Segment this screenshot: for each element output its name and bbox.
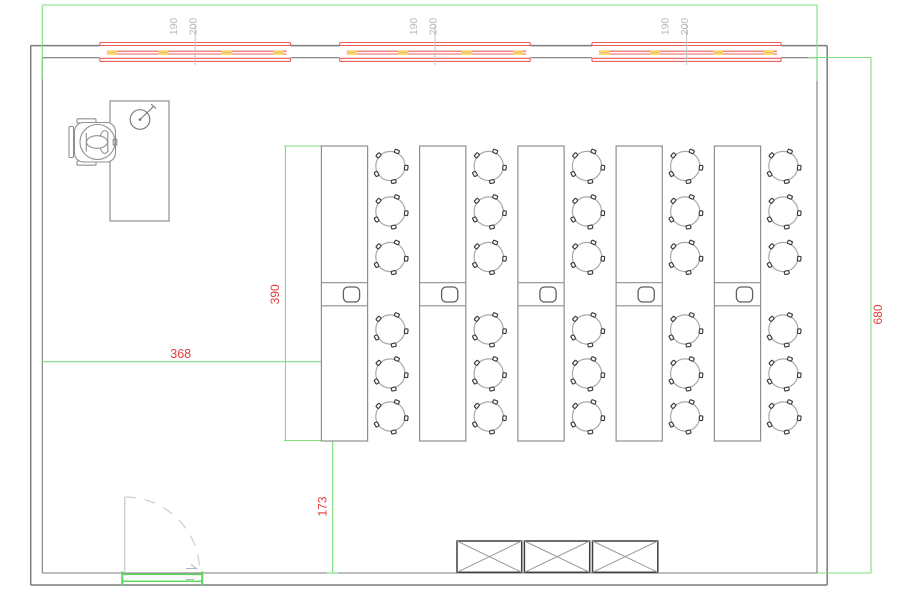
- svg-text:173: 173: [316, 496, 330, 516]
- svg-text:190: 190: [660, 18, 672, 36]
- svg-text:200: 200: [427, 18, 439, 36]
- svg-text:680: 680: [871, 304, 885, 324]
- svg-text:190: 190: [408, 18, 420, 36]
- svg-text:200: 200: [679, 18, 691, 36]
- svg-text:368: 368: [170, 347, 191, 361]
- svg-text:190: 190: [168, 18, 180, 36]
- svg-text:390: 390: [268, 284, 282, 304]
- svg-text:200: 200: [188, 18, 200, 36]
